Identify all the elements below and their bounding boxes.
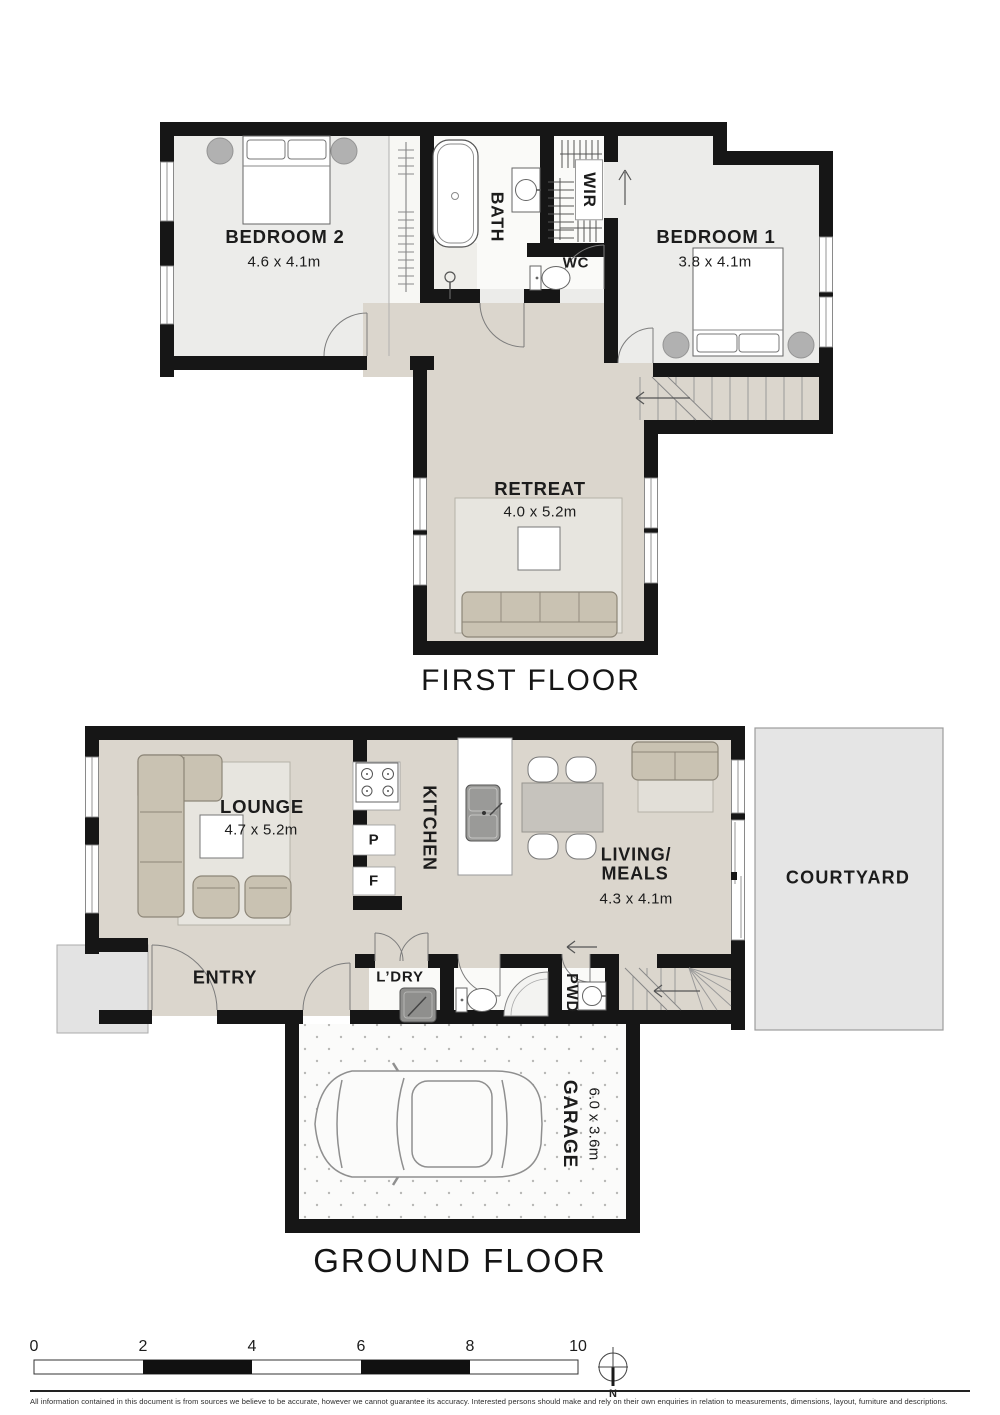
bedroom2-label: BEDROOM 2	[225, 226, 344, 248]
retreat-label: RETREAT	[494, 478, 586, 500]
bathtub-icon	[433, 140, 478, 247]
washer-icon	[400, 988, 436, 1022]
pwd-basin-icon	[578, 982, 606, 1010]
car-icon	[315, 1063, 542, 1185]
living-meals-dims: 4.3 x 4.1m	[599, 891, 672, 908]
retreat-dims: 4.0 x 5.2m	[503, 504, 576, 521]
first-floor-title: FIRST FLOOR	[421, 664, 641, 698]
ground-floor-title: GROUND FLOOR	[313, 1242, 607, 1280]
stove-icon	[356, 763, 398, 802]
kitchen-label: KITCHEN	[419, 785, 440, 871]
retreat-sofa-icon	[462, 592, 617, 637]
island-bench	[458, 738, 512, 875]
scale-label-0: 0	[30, 1338, 39, 1356]
courtyard-label: COURTYARD	[786, 868, 910, 889]
laundry-label: L’DRY	[376, 969, 424, 986]
floorplan-page: BEDROOM 2 4.6 x 4.1m BATH WIR WC BEDROOM…	[0, 0, 1000, 1415]
garage-dims: 6.0 x 3.6m	[586, 1087, 603, 1160]
bedroom2-dims: 4.6 x 4.1m	[247, 254, 320, 271]
wir-label: WIR	[575, 159, 603, 220]
north-compass-icon	[598, 1347, 628, 1386]
lounge-label: LOUNGE	[220, 796, 304, 818]
disclaimer-text: All information contained in this docume…	[30, 1397, 975, 1406]
scale-label-10: 10	[569, 1338, 587, 1356]
scale-bar	[34, 1360, 578, 1374]
wc-label: WC	[563, 255, 590, 272]
bedroom1-dims: 3.8 x 4.1m	[678, 254, 751, 271]
living-sofa-icon	[632, 742, 718, 780]
living-meals-label-1: LIVING/	[601, 845, 672, 866]
living-meals-label-2: MEALS	[602, 864, 669, 885]
vanity-icon	[512, 168, 541, 212]
gf-toilet-icon	[456, 988, 497, 1012]
scale-label-6: 6	[357, 1338, 366, 1356]
powder-label: PWD	[562, 973, 580, 1013]
bedroom1-label: BEDROOM 1	[656, 226, 775, 248]
bath-label: BATH	[487, 192, 508, 243]
entry-label: ENTRY	[193, 968, 257, 989]
pantry-label: P	[369, 832, 380, 849]
scale-label-2: 2	[139, 1338, 148, 1356]
garage-label: GARAGE	[558, 1080, 580, 1168]
fridge-label: F	[369, 873, 379, 890]
scale-label-8: 8	[466, 1338, 475, 1356]
footer-divider	[30, 1390, 970, 1392]
ground-floor-plan	[57, 726, 943, 1233]
scale-label-4: 4	[248, 1338, 257, 1356]
lounge-dims: 4.7 x 5.2m	[224, 822, 297, 839]
